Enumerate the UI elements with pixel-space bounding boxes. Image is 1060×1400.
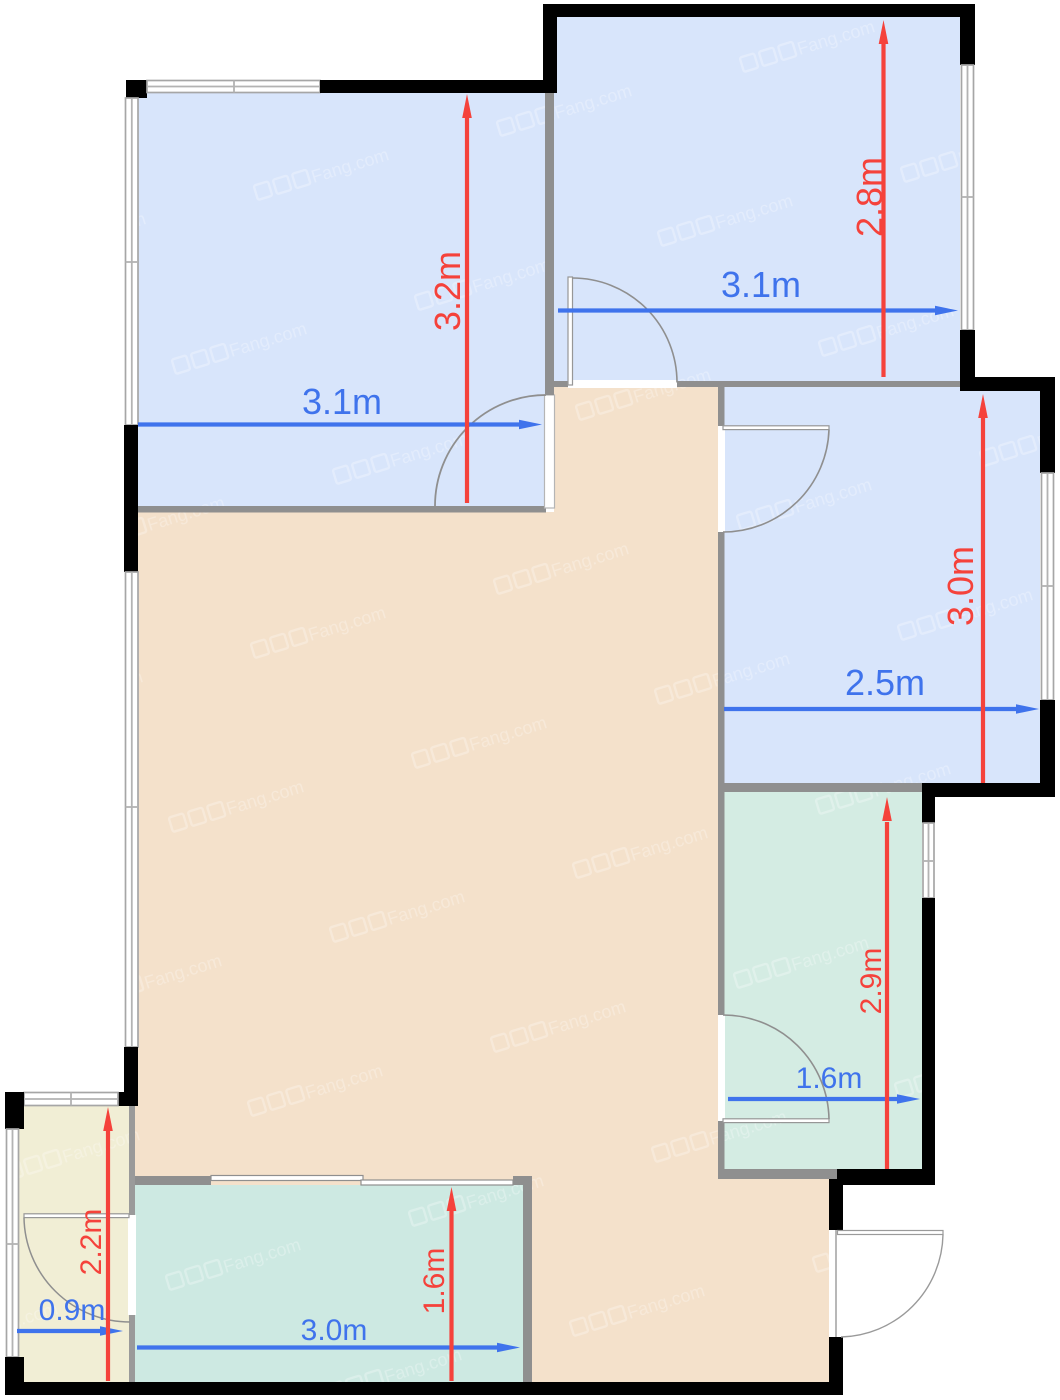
svg-text:2.9m: 2.9m xyxy=(855,948,888,1015)
svg-text:3.1m: 3.1m xyxy=(302,381,382,422)
svg-text:2.2m: 2.2m xyxy=(75,1209,108,1276)
svg-text:0.9m: 0.9m xyxy=(39,1294,106,1327)
svg-text:2.5m: 2.5m xyxy=(845,662,925,703)
svg-text:3.2m: 3.2m xyxy=(427,251,468,331)
svg-text:1.6m: 1.6m xyxy=(418,1248,451,1315)
svg-text:3.0m: 3.0m xyxy=(301,1314,368,1347)
svg-text:3.0m: 3.0m xyxy=(940,546,981,626)
svg-text:1.6m: 1.6m xyxy=(796,1062,863,1095)
svg-text:3.1m: 3.1m xyxy=(721,264,801,305)
svg-text:2.8m: 2.8m xyxy=(849,157,890,237)
